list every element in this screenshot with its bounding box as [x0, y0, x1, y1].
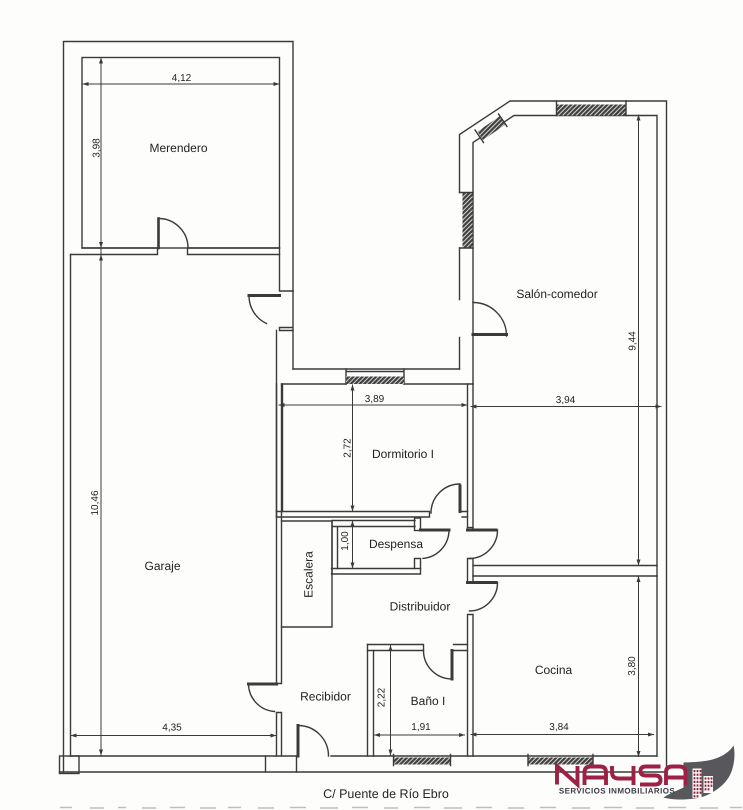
svg-text:Salón-comedor: Salón-comedor: [516, 287, 597, 301]
svg-text:Dormitorio I: Dormitorio I: [372, 447, 434, 461]
svg-text:3,80: 3,80: [627, 656, 638, 676]
svg-text:SERVICIOS INMOBILIARIOS: SERVICIOS INMOBILIARIOS: [559, 787, 675, 796]
svg-text:Merendero: Merendero: [149, 141, 207, 155]
svg-text:2,22: 2,22: [377, 687, 388, 707]
svg-text:Garaje: Garaje: [144, 559, 180, 573]
svg-text:Despensa: Despensa: [369, 537, 423, 551]
svg-text:3,98: 3,98: [92, 138, 103, 158]
svg-text:Distribuidor: Distribuidor: [390, 600, 451, 614]
svg-text:1,91: 1,91: [411, 722, 431, 733]
svg-text:1,00: 1,00: [340, 531, 351, 551]
svg-text:Baño I: Baño I: [411, 694, 446, 708]
svg-text:3,84: 3,84: [549, 722, 569, 733]
svg-text:10,46: 10,46: [90, 490, 101, 515]
svg-text:C/ Puente de Río Ebro: C/ Puente de Río Ebro: [323, 787, 449, 801]
svg-text:3,89: 3,89: [365, 394, 385, 405]
svg-text:Recibidor: Recibidor: [300, 690, 351, 704]
svg-text:Escalera: Escalera: [302, 551, 316, 598]
svg-text:4,35: 4,35: [162, 723, 182, 734]
svg-text:2,72: 2,72: [343, 438, 354, 458]
svg-text:4,12: 4,12: [172, 73, 192, 84]
svg-text:9,44: 9,44: [628, 331, 639, 351]
svg-text:Cocina: Cocina: [535, 663, 573, 677]
svg-text:3,94: 3,94: [556, 395, 576, 406]
